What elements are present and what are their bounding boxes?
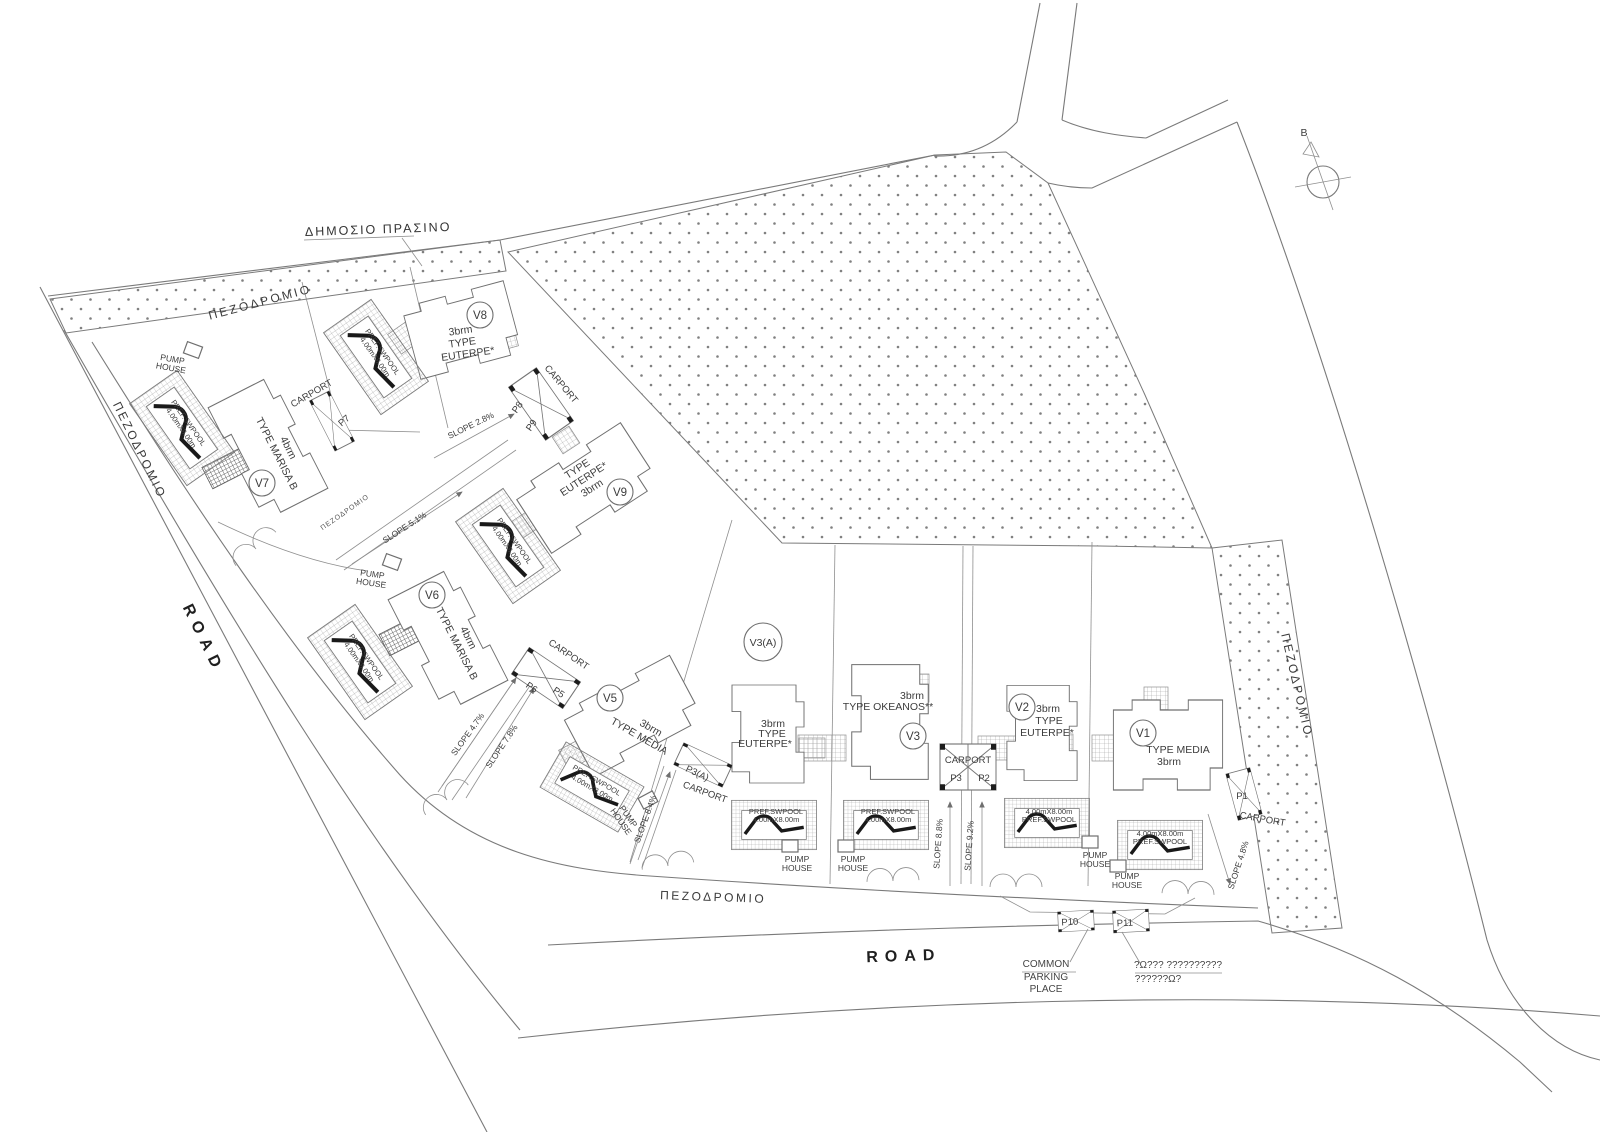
svg-text:EUTERPE*: EUTERPE* [1020, 727, 1074, 739]
slope-label-5-1: SLOPE 5.1% [381, 509, 429, 545]
svg-text:V7: V7 [255, 478, 269, 490]
pump-label-v6: PUMPHOUSE [355, 567, 388, 590]
svg-text:V1: V1 [1136, 728, 1150, 740]
villa-id-v5: V5 [597, 685, 623, 711]
pump-label-v7: PUMPHOUSE [155, 351, 188, 375]
svg-text:V5: V5 [603, 693, 617, 705]
villa-id-v1: V1 [1130, 720, 1156, 746]
road-label-bottom: ROAD [866, 947, 942, 967]
svg-text:3brm: 3brm [1157, 756, 1181, 768]
pool-label-v3: PREF.SWPOOL4.00mX8.00m [861, 807, 915, 824]
svg-text:PREF.SWPOOL: PREF.SWPOOL [1133, 837, 1187, 846]
svg-text:COMMON: COMMON [1023, 959, 1070, 970]
compass-north-label: B [1300, 127, 1307, 139]
svg-text:HOUSE: HOUSE [838, 863, 869, 873]
road-label-left: ROAD [179, 602, 227, 677]
building-v3 [852, 665, 929, 780]
svg-text:?Ω??? ??????????: ?Ω??? ?????????? [1134, 960, 1223, 971]
parking-label-p3: P3 [950, 773, 962, 784]
svg-text:TYPE: TYPE [1035, 715, 1062, 727]
carport-label-p3p2: CARPORT [945, 755, 991, 766]
slope-label-9-2: SLOPE 9.2% [962, 820, 976, 871]
site-plan-drawing: B ΔΗΜΟΣΙΟ ΠΡΑΣΙΝΟ ΠΕΖΟΔΡΟΜΙΟ ΠΕΖΟΔΡΟΜΙΟ … [0, 0, 1600, 1132]
svg-text:HOUSE: HOUSE [782, 863, 813, 873]
svg-text:PARKING: PARKING [1024, 972, 1068, 983]
svg-text:V3: V3 [906, 731, 920, 743]
villa-id-v3a: V3(A) [744, 623, 782, 661]
svg-text:PLACE: PLACE [1030, 984, 1063, 995]
public-green-label: ΔΗΜΟΣΙΟ ΠΡΑΣΙΝΟ [305, 220, 452, 239]
villa-id-v3: V3 [900, 723, 926, 749]
svg-text:V2: V2 [1015, 702, 1029, 714]
pump-label-v2: PUMPHOUSE [1080, 850, 1111, 869]
common-parking-note: COMMON PARKING PLACE [1023, 959, 1070, 995]
unreadable-note: ?Ω??? ?????????? ??????Ω? [1134, 960, 1223, 985]
parking-label-p10: P10 [1061, 917, 1078, 929]
villa-id-v6: V6 [419, 582, 445, 608]
svg-text:??????Ω?: ??????Ω? [1135, 974, 1182, 985]
pool-label-v3a: PREF.SWPOOL4.00mX8.00m [749, 807, 803, 824]
site-plan-svg: B ΔΗΜΟΣΙΟ ΠΡΑΣΙΝΟ ΠΕΖΟΔΡΟΜΙΟ ΠΕΖΟΔΡΟΜΙΟ … [0, 0, 1600, 1132]
compass: B [1295, 127, 1351, 210]
svg-text:4.00mX8.00m: 4.00mX8.00m [865, 815, 912, 824]
villa-id-v7: V7 [249, 470, 275, 496]
svg-text:TYPE OKEANOS**: TYPE OKEANOS** [843, 701, 933, 713]
pool-label-v2: 4.00mX8.00mPREF.SWPOOL [1022, 807, 1076, 824]
svg-text:3brm: 3brm [1036, 703, 1060, 715]
slope-label-8-8: SLOPE 8.8% [931, 818, 945, 869]
walkway-label-inner: ΠΕΖΟΔΡΟΜΙΟ [320, 493, 371, 532]
villa-id-v9: V9 [607, 479, 633, 505]
parking-label-p11: P11 [1116, 918, 1133, 930]
villa-id-v2: V2 [1009, 694, 1035, 720]
svg-text:V9: V9 [613, 487, 627, 499]
walkway-label-bottom: ΠΕΖΟΔΡΟΜΙΟ [660, 888, 767, 906]
pump-label-v3: PUMPHOUSE [838, 854, 869, 873]
parking-label-p2: P2 [978, 773, 990, 784]
svg-text:V3(A): V3(A) [750, 637, 777, 649]
svg-text:4.00mX8.00m: 4.00mX8.00m [753, 815, 800, 824]
svg-text:HOUSE: HOUSE [1112, 880, 1143, 890]
svg-text:EUTERPE*: EUTERPE* [738, 738, 792, 750]
svg-text:V8: V8 [473, 310, 487, 322]
road-lines [40, 3, 1600, 1132]
slope-label-4-7: SLOPE 4.7% [449, 711, 487, 758]
pool-label-v1: 4.00mX8.00mPREF.SWPOOL [1133, 829, 1187, 846]
slope-label-2-8: SLOPE 2.8% [446, 410, 496, 441]
pump-label-v1: PUMPHOUSE [1112, 871, 1143, 890]
svg-text:HOUSE: HOUSE [1080, 859, 1111, 869]
svg-text:V6: V6 [425, 590, 439, 602]
svg-text:PREF.SWPOOL: PREF.SWPOOL [1022, 815, 1076, 824]
parking-label-p1: P1 [1236, 791, 1248, 802]
svg-text:TYPE MEDIA: TYPE MEDIA [1146, 744, 1210, 756]
pump-label-v3a: PUMPHOUSE [782, 854, 813, 873]
slope-label-4-8: SLOPE 4.8% [1226, 839, 1251, 890]
